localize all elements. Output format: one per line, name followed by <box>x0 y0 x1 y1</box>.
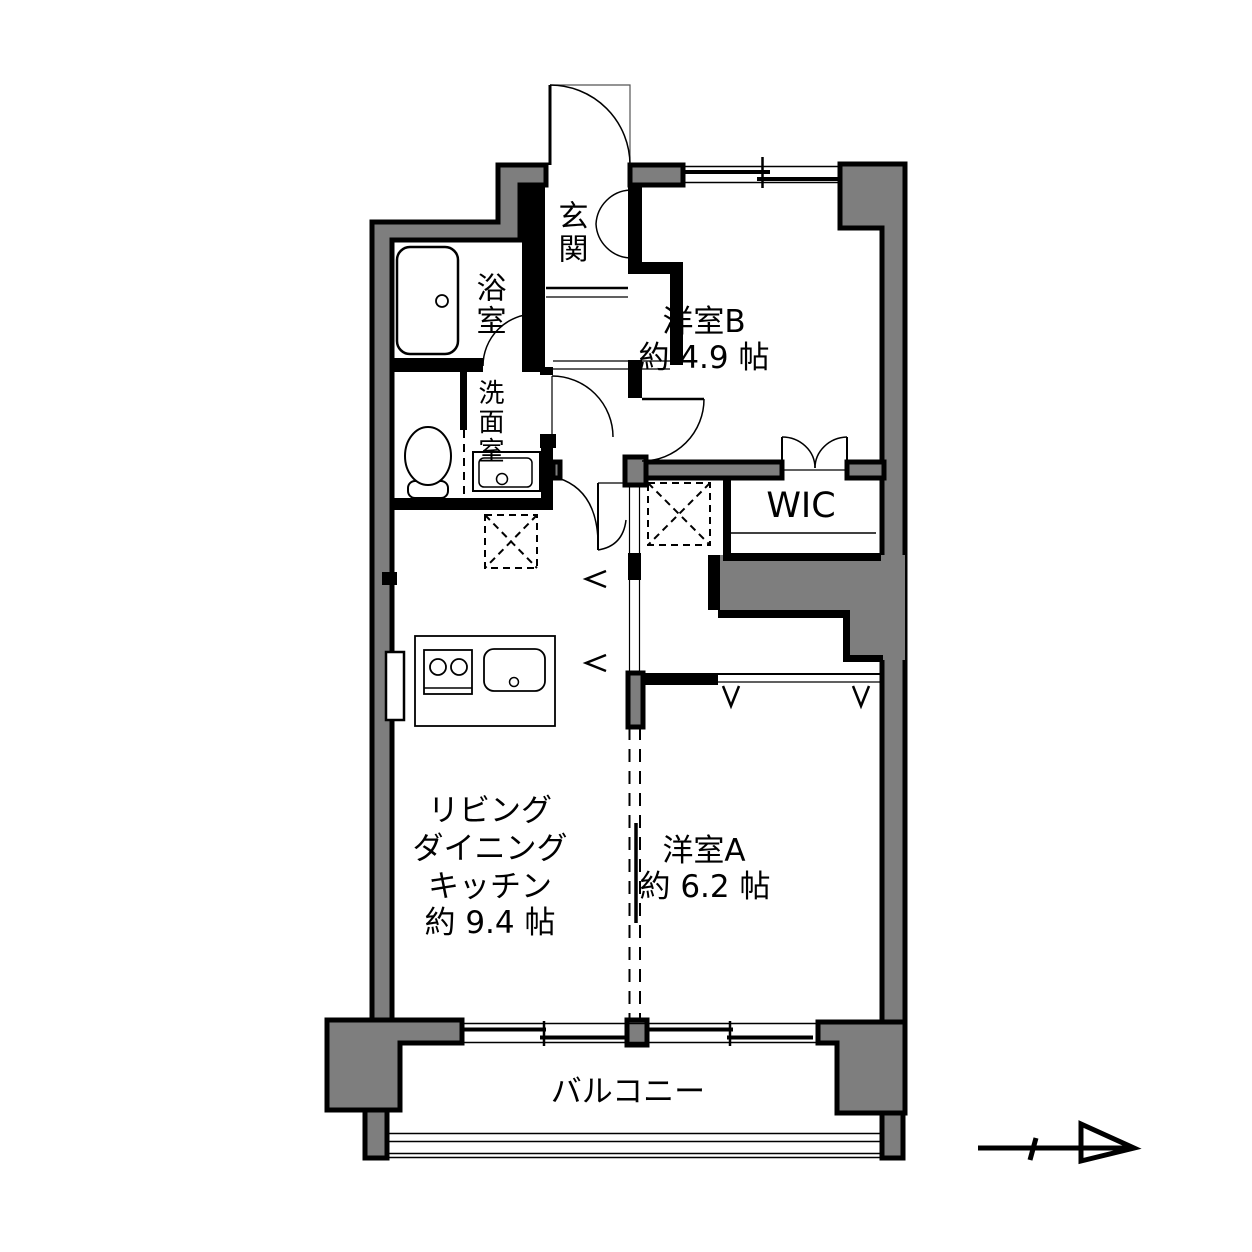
storage-box-ldk <box>485 515 537 568</box>
wall-corridor-east <box>708 555 720 610</box>
label-washroom: 洗面室 <box>474 379 504 466</box>
shoe-cabinet-doors <box>596 190 630 258</box>
wall-closet-north <box>718 610 850 618</box>
wall-entrance-left-leg <box>628 185 642 262</box>
slide-arrow-icon <box>586 655 606 671</box>
wall-closet-east <box>843 618 850 657</box>
floor-plan-page: 玄関 浴室 洗面室 洋室B 約 4.9 帖 WIC リビング ダイニング キッチ… <box>0 0 1252 1252</box>
wall-hall-south-c <box>847 462 884 478</box>
wall-bath-south <box>392 358 483 372</box>
floor-plan: 玄関 浴室 洗面室 洋室B 約 4.9 帖 WIC リビング ダイニング キッチ… <box>0 0 1252 1252</box>
slide-arrow-icon <box>586 571 606 587</box>
partition-ldk-room-a <box>630 727 641 1020</box>
pillar-bottom-right-stem <box>882 1113 903 1158</box>
storage-box-hall <box>648 483 710 545</box>
balcony-railing <box>387 1134 882 1158</box>
label-room-a-area: 約 6.2 帖 <box>639 869 770 905</box>
wall-corridor-stub <box>628 673 643 727</box>
label-wic: WIC <box>766 486 835 526</box>
wall-corridor-post <box>628 553 641 580</box>
label-ldk-area: 約 9.4 帖 <box>424 905 555 941</box>
kitchen-counter <box>415 636 555 726</box>
wall-hall-south-a <box>553 462 560 478</box>
label-room-a: 洋室A <box>662 833 745 869</box>
wall-closet-step <box>843 655 883 662</box>
label-room-b-area: 約 4.9 帖 <box>638 340 769 376</box>
toilet <box>405 427 451 498</box>
burner <box>451 659 467 675</box>
room-b-door <box>642 399 704 461</box>
label-ldk-1: リビング <box>428 793 552 829</box>
wall-mass-wic <box>718 555 905 660</box>
label-room-b: 洋室B <box>662 304 745 340</box>
pillar-bottom-right <box>818 1022 905 1113</box>
wall-rooma-northwest <box>643 673 718 685</box>
label-ldk-2: ダイニング <box>413 831 568 867</box>
label-bathroom: 浴室 <box>471 272 506 338</box>
wall-entrance-stub <box>630 165 683 185</box>
fold-arrow-icon <box>723 686 739 706</box>
wall-wic-south <box>723 553 881 561</box>
pillar-bottom-left-stem <box>365 1110 387 1158</box>
bathtub <box>397 247 458 354</box>
wall-wic-west <box>723 477 731 553</box>
wall-ldk-left-step <box>382 572 397 585</box>
ldk-door <box>558 478 626 550</box>
fold-arrow-icon <box>853 686 869 706</box>
wall-toilet-divider <box>460 367 467 430</box>
pipe-space <box>386 652 404 720</box>
washroom-door <box>552 376 613 437</box>
wall-alcove-horiz <box>628 262 683 274</box>
wall-hall-south-b <box>630 462 782 478</box>
wall-ldk-north <box>390 498 553 510</box>
wall-wash-east-top <box>540 367 553 375</box>
label-ldk-3: キッチン <box>428 869 552 905</box>
north-arrow-icon <box>978 1124 1134 1161</box>
wall-bath-east <box>522 185 545 372</box>
window-room-b <box>683 157 842 188</box>
burner <box>430 659 446 675</box>
pillar-bottom-left <box>327 1020 462 1110</box>
wic-double-doors <box>782 437 847 470</box>
label-genkan: 玄関 <box>553 200 588 266</box>
wall-wash-hinge-post <box>540 434 556 448</box>
room-a-closet-front <box>718 674 883 706</box>
label-balcony: バルコニー <box>551 1074 705 1110</box>
